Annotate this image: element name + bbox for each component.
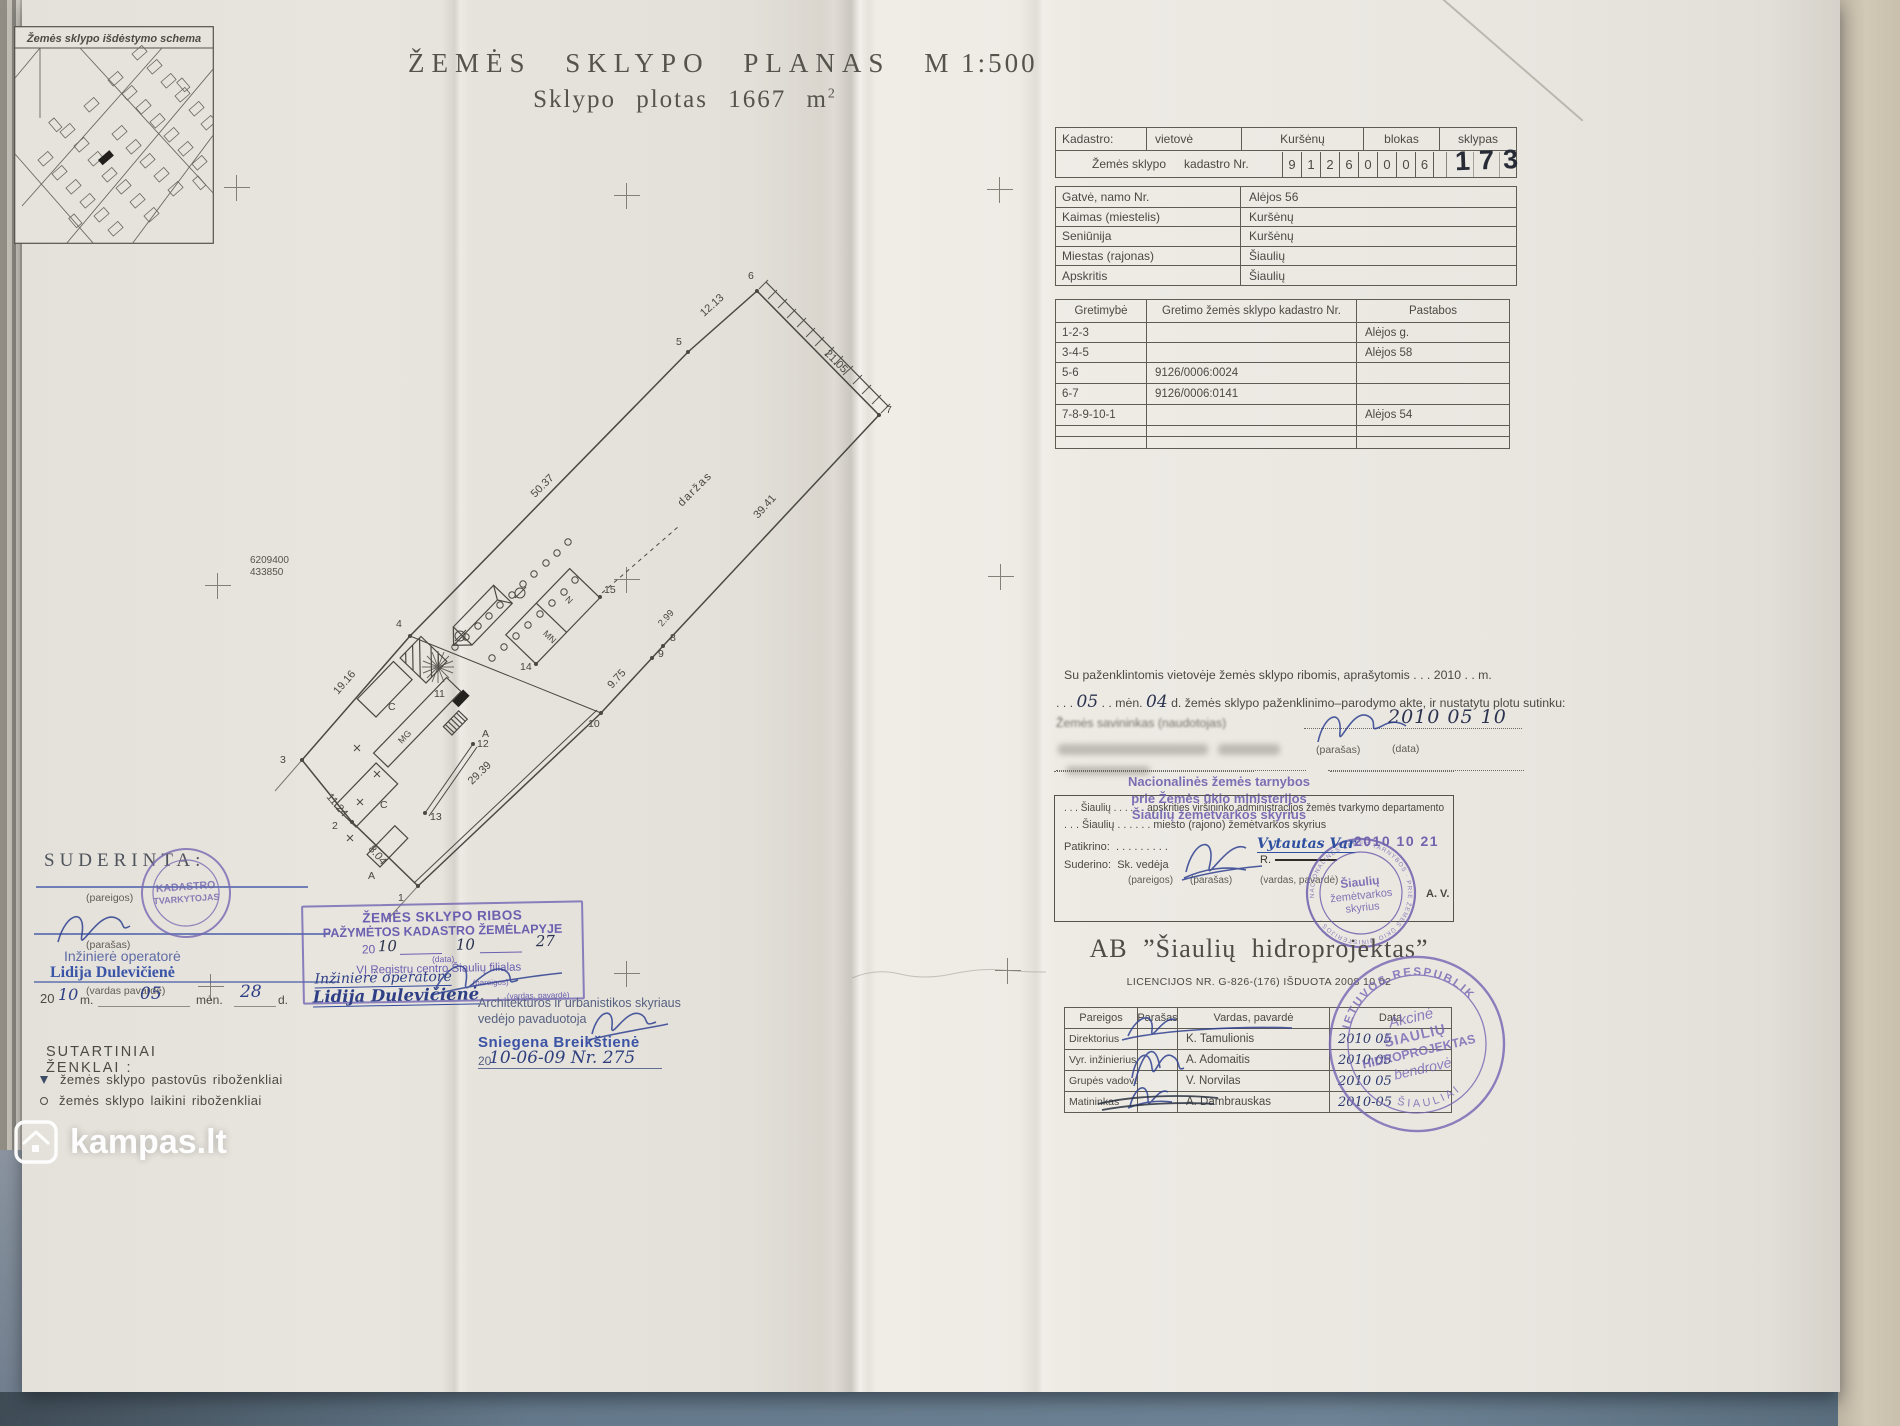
owner-label: Žemės savininkas (naudotojas) bbox=[1056, 716, 1226, 730]
adjacency-header: Gretimybė bbox=[1056, 300, 1146, 322]
location-schema-inset: Žemės sklypo išdėstymo schema bbox=[14, 26, 214, 244]
permanent-marker-icon bbox=[40, 1076, 48, 1084]
handwritten-date: 2010 05 10 bbox=[1388, 706, 1507, 728]
registration-cross bbox=[988, 564, 1014, 590]
address-label: Miestas (rajonas) bbox=[1056, 247, 1240, 266]
redacted-owner-name bbox=[1218, 744, 1280, 755]
kampas-house-icon bbox=[14, 1120, 58, 1164]
signature-line bbox=[34, 981, 338, 983]
svg-text:skyrius: skyrius bbox=[1345, 900, 1381, 916]
digit-box: 9 bbox=[1282, 152, 1301, 177]
svg-text:N: N bbox=[563, 594, 575, 606]
adjacency-cell bbox=[1146, 323, 1356, 342]
av-label: A. V. bbox=[1426, 888, 1449, 900]
kadastro-round-stamp: KADASTRO TVARKYTOJAS bbox=[138, 844, 234, 942]
parasas-label: (parašas) bbox=[1190, 875, 1232, 886]
architect-underline bbox=[478, 1068, 662, 1069]
address-value: Šiaulių bbox=[1240, 247, 1516, 266]
company-round-stamp: LIETUVOS RESPUBLIKA Akcinė ŠIAULIŲ HIDRO… bbox=[1322, 948, 1512, 1140]
pareigos-label: (pareigos) bbox=[86, 892, 133, 904]
address-label: Gatvė, namo Nr. bbox=[1056, 187, 1240, 207]
adjacency-cell: Alėjos 58 bbox=[1356, 343, 1509, 362]
architect-line1: Architektūros ir urbanistikos skyriaus bbox=[478, 996, 681, 1010]
address-value: Šiaulių bbox=[1240, 266, 1516, 285]
svg-text:10: 10 bbox=[588, 718, 600, 730]
d-label: d. bbox=[278, 993, 288, 1007]
svg-text:11: 11 bbox=[434, 688, 445, 700]
svg-text:2.99: 2.99 bbox=[656, 608, 677, 629]
svg-text:12.13: 12.13 bbox=[698, 292, 726, 319]
svg-text:50.37: 50.37 bbox=[529, 472, 557, 500]
adjacency-cell bbox=[1146, 405, 1356, 425]
vietove-value: Kuršėnų bbox=[1241, 128, 1363, 150]
adjacency-cell: 5-6 bbox=[1056, 363, 1146, 383]
inset-title: Žemės sklypo išdėstymo schema bbox=[26, 32, 201, 45]
svg-text:MN: MN bbox=[541, 628, 558, 645]
hw-day: 28 bbox=[240, 982, 262, 1002]
svg-text:19.16: 19.16 bbox=[331, 668, 358, 697]
stamp-hw-month: 10 bbox=[456, 935, 475, 953]
men-label: mėn. bbox=[196, 993, 223, 1007]
adjacency-cell bbox=[1356, 437, 1509, 448]
tree-symbol bbox=[422, 651, 454, 683]
company-person: A. Dambrauskas bbox=[1177, 1092, 1329, 1112]
svg-text:13: 13 bbox=[430, 811, 442, 823]
adjacency-cell: 7-8-9-10-1 bbox=[1056, 405, 1146, 425]
digit-box: 0 bbox=[1377, 152, 1396, 177]
building-hatched bbox=[400, 636, 447, 683]
consent-line1: Su paženklintomis vietovėje žemės sklypo… bbox=[1064, 668, 1492, 682]
svg-text:8.04: 8.04 bbox=[366, 843, 389, 867]
architect-hw-date: 10-06-09 Nr. 275 bbox=[489, 1048, 635, 1068]
area-unit: m2 bbox=[806, 86, 836, 113]
plan-scale: M 1:500 bbox=[924, 48, 1037, 78]
date-underline bbox=[234, 1006, 276, 1007]
data-label: (data) bbox=[1392, 743, 1419, 755]
blokas-label: blokas bbox=[1363, 128, 1439, 150]
operator-role: Inžinierė operatorė bbox=[64, 948, 181, 964]
temporary-marker-icon bbox=[40, 1097, 48, 1105]
cadastre-table: Kadastro: vietovė Kuršėnų blokas sklypas… bbox=[1055, 127, 1517, 178]
patikrino-line: Patikrino: . . . . . . . . . bbox=[1064, 841, 1168, 853]
stamp-text-line: Nacionalinės žemės tarnybos bbox=[1084, 774, 1354, 789]
company-signature-cell bbox=[1137, 1029, 1177, 1049]
adjacency-cell: Alėjos g. bbox=[1356, 323, 1509, 342]
company-role: Matininkas bbox=[1065, 1092, 1137, 1112]
x-marks bbox=[347, 745, 380, 841]
address-value: Alėjos 56 bbox=[1240, 187, 1516, 207]
svg-text:39.41: 39.41 bbox=[751, 493, 778, 521]
dotted-rule bbox=[1330, 771, 1454, 772]
address-label: Kaimas (miestelis) bbox=[1056, 208, 1240, 227]
svg-text:7: 7 bbox=[886, 404, 892, 416]
svg-text:ŠIAULIAI: ŠIAULIAI bbox=[1394, 1080, 1466, 1116]
operator-name: Lidija Dulevičienė bbox=[50, 964, 175, 982]
plan-title-text: ŽEMĖS SKLYPO PLANAS bbox=[408, 48, 890, 78]
svg-text:433850: 433850 bbox=[250, 567, 284, 578]
adjacency-cell bbox=[1056, 426, 1146, 436]
yard-lower bbox=[334, 763, 397, 827]
road-hatching bbox=[759, 280, 890, 413]
stamp-hw-year: 10 bbox=[378, 937, 397, 955]
adjacency-cell: Alėjos 54 bbox=[1356, 405, 1509, 425]
stamp-text-line: prie Žemės ūkio ministerijos bbox=[1084, 791, 1354, 806]
svg-text:2: 2 bbox=[332, 820, 338, 832]
company-role: Vyr. inžinierius bbox=[1065, 1050, 1137, 1070]
company-role: Direktorius bbox=[1065, 1029, 1137, 1049]
yard-upper bbox=[357, 662, 412, 717]
plan-title: ŽEMĖS SKLYPO PLANASM 1:500 bbox=[408, 48, 1008, 79]
hw-month: 05 bbox=[140, 984, 162, 1004]
plot-drawing: MN N MG bbox=[230, 255, 950, 955]
address-label: Seniūnija bbox=[1056, 227, 1240, 246]
cadastre-number-label: Žemės sklypokadastro Nr. bbox=[1056, 157, 1282, 171]
svg-text:15: 15 bbox=[604, 584, 616, 596]
digit-box: 0 bbox=[1396, 152, 1415, 177]
svg-text:14: 14 bbox=[520, 661, 532, 673]
company-signature-cell bbox=[1137, 1071, 1177, 1091]
adjacency-cell: 1-2-3 bbox=[1056, 323, 1146, 342]
stamp-hw-name: Lidija Dulevičienė bbox=[313, 984, 480, 1007]
digit-box: 2 bbox=[1320, 152, 1339, 177]
buildings: MN N MG bbox=[334, 569, 599, 867]
scanned-land-plan-photo: Žemės sklypo išdėstymo schema ŽEMĖS SKLY… bbox=[0, 0, 1900, 1426]
blue-sheet-edge bbox=[0, 1150, 24, 1392]
vietove-label: vietovė bbox=[1146, 128, 1241, 150]
svg-text:4: 4 bbox=[396, 618, 402, 630]
svg-text:8: 8 bbox=[670, 632, 676, 644]
address-label: Apskritis bbox=[1056, 266, 1240, 285]
handwritten-day: 04 bbox=[1146, 692, 1168, 712]
stamped-name: Vytautas Var bbox=[1257, 836, 1355, 853]
kampas-watermark: kampas.lt bbox=[14, 1120, 227, 1164]
company-signature-cell bbox=[1137, 1092, 1177, 1112]
plot-area-line: Sklypo plotas 1667 m2 bbox=[505, 86, 865, 114]
svg-text:3: 3 bbox=[280, 754, 286, 766]
adjacency-header: Gretimo žemės sklypo kadastro Nr. bbox=[1146, 300, 1356, 322]
hw-year: 10 bbox=[58, 985, 78, 1004]
adjacency-cell bbox=[1146, 426, 1356, 436]
coordinate-label: 6209400 433850 bbox=[250, 555, 289, 578]
svg-text:A: A bbox=[482, 728, 489, 740]
svg-text:C: C bbox=[388, 701, 396, 713]
company-person: K. Tamulionis bbox=[1177, 1029, 1329, 1049]
registration-cross bbox=[987, 177, 1013, 203]
company-signature-cell bbox=[1137, 1050, 1177, 1070]
fabric-background bbox=[1838, 0, 1900, 1426]
svg-text:A: A bbox=[368, 870, 375, 882]
date-year-prefix: 20 bbox=[40, 991, 54, 1006]
cadastre-digit-boxes: 9 1 2 6 0 0 0 6 bbox=[1282, 152, 1434, 177]
adjacency-header: Pastabos bbox=[1356, 300, 1509, 322]
svg-text:1: 1 bbox=[398, 892, 404, 904]
legend-item-temporary: žemės sklypo laikini riboženkliai bbox=[40, 1093, 262, 1108]
architect-line2: vedėjo pavaduotoja bbox=[478, 1012, 586, 1026]
address-table: Gatvė, namo Nr.Alėjos 56 Kaimas (miestel… bbox=[1055, 186, 1517, 286]
adjacency-cell bbox=[1146, 343, 1356, 362]
cadastre-label: Kadastro: bbox=[1056, 128, 1146, 150]
adjacency-cell: 6-7 bbox=[1056, 384, 1146, 404]
adjacency-cell: 9126/0006:0141 bbox=[1146, 384, 1356, 404]
garden-label: daržas bbox=[676, 470, 715, 509]
adjacency-table: Gretimybė Gretimo žemės sklypo kadastro … bbox=[1055, 299, 1510, 449]
digit-box: 6 bbox=[1415, 152, 1434, 177]
table-surface bbox=[0, 1388, 1900, 1426]
sklypas-number-box: 173 bbox=[1446, 152, 1516, 177]
signature-dotline bbox=[1304, 728, 1522, 729]
parasas-label: (parašas) bbox=[1316, 744, 1360, 756]
company-header: Pareigos bbox=[1065, 1008, 1137, 1028]
adjacency-cell bbox=[1146, 437, 1356, 448]
company-role: Grupės vadovas bbox=[1065, 1071, 1137, 1091]
svg-text:C: C bbox=[380, 799, 388, 811]
registration-cross bbox=[995, 958, 1021, 984]
pareigos-label: (pareigos) bbox=[1128, 875, 1173, 886]
company-person: A. Adomaitis bbox=[1177, 1050, 1329, 1070]
svg-text:6209400: 6209400 bbox=[250, 555, 289, 566]
registration-cross bbox=[224, 175, 250, 201]
stamp-hw-day: 27 bbox=[536, 932, 555, 950]
svg-text:9: 9 bbox=[658, 648, 664, 660]
dotted-rule bbox=[1054, 771, 1254, 772]
building-striped bbox=[443, 711, 467, 735]
adjacency-cell: 3-4-5 bbox=[1056, 343, 1146, 362]
registration-cross bbox=[205, 573, 231, 599]
registration-cross bbox=[614, 961, 640, 987]
handwritten-month: 05 bbox=[1077, 692, 1099, 712]
company-header: Parašas bbox=[1137, 1008, 1177, 1028]
area-prefix: Sklypo plotas bbox=[533, 86, 708, 113]
svg-text:5: 5 bbox=[676, 336, 682, 348]
digit-box: 1 bbox=[1301, 152, 1320, 177]
company-person: V. Norvilas bbox=[1177, 1071, 1329, 1091]
registry-border-stamp: ŽEMĖS SKLYPO RIBOS PAŽYMĖTOS KADASTRO ŽE… bbox=[301, 900, 585, 1004]
digit-box: 6 bbox=[1339, 152, 1358, 177]
plot-boundary bbox=[275, 282, 888, 919]
date-underline bbox=[98, 1006, 190, 1007]
sklypas-handwritten: 173 bbox=[1454, 143, 1527, 176]
adjacency-cell bbox=[1356, 363, 1509, 383]
kampas-brand-text: kampas.lt bbox=[70, 1123, 227, 1162]
redacted-owner-name bbox=[1058, 744, 1208, 755]
suderino-line: Suderino: Sk. vedėja bbox=[1064, 859, 1169, 871]
company-header: Vardas, pavardė bbox=[1177, 1008, 1329, 1028]
svg-text:29.39: 29.39 bbox=[466, 759, 494, 787]
address-value: Kuršėnų bbox=[1240, 208, 1516, 227]
legend-item-permanent: žemės sklypo pastovūs riboženkliai bbox=[40, 1072, 283, 1087]
svg-text:6: 6 bbox=[748, 270, 754, 282]
stamped-date: 2010 10 21 bbox=[1354, 833, 1439, 849]
area-value: 1667 bbox=[728, 86, 786, 113]
adjacency-cell bbox=[1056, 437, 1146, 448]
m-label: m. bbox=[80, 993, 93, 1007]
adjacency-cell: 9126/0006:0024 bbox=[1146, 363, 1356, 383]
tree-row bbox=[452, 539, 578, 661]
adjacency-cell bbox=[1356, 426, 1509, 436]
adjacency-cell bbox=[1356, 384, 1509, 404]
vertex-numbers: 1 2 3 4 5 6 7 8 9 10 11 12 13 14 15 A A … bbox=[280, 270, 892, 904]
digit-box: 0 bbox=[1358, 152, 1377, 177]
stamp-text-line: Šiaulių žemėtvarkos skyrius bbox=[1084, 807, 1354, 822]
address-value: Kuršėnų bbox=[1240, 227, 1516, 246]
dimension-labels: 19.16 50.37 12.13 21.05 39.41 2.99 9.75 … bbox=[324, 292, 850, 867]
registration-cross bbox=[614, 183, 640, 209]
